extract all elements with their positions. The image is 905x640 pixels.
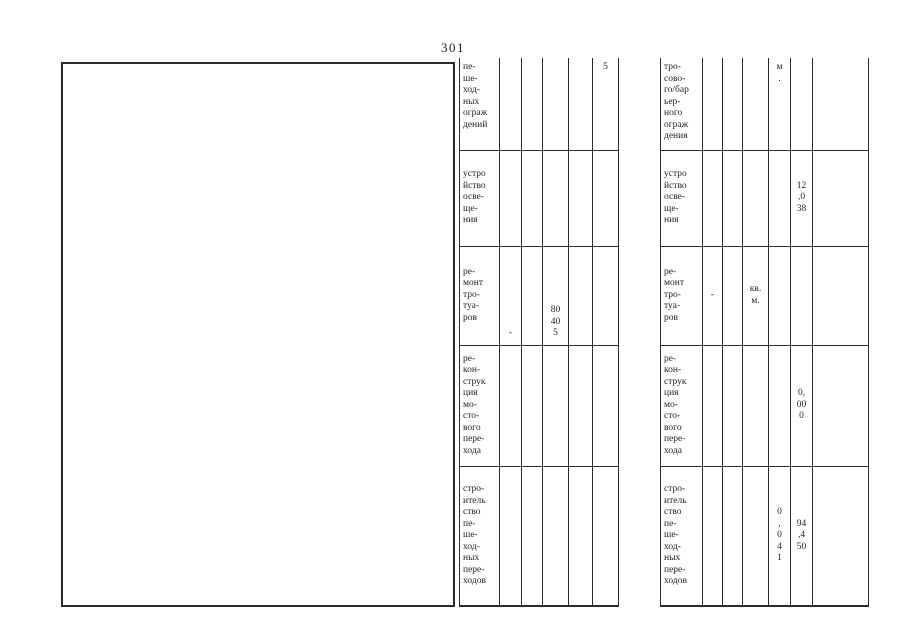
data-cell (522, 58, 543, 150)
table-row: ре- монт тро- туа- ров - кв. м. (661, 246, 869, 345)
data-cell (500, 345, 522, 466)
data-cell (522, 345, 543, 466)
table-row: устро йство осве- ще- ния 12 ,0 38 (661, 150, 869, 246)
data-cell (723, 246, 743, 345)
data-cell (723, 345, 743, 466)
table-fragment-left: пе- ше- ход- ных ограж дений 5 устро йст… (459, 58, 619, 607)
data-cell (543, 150, 569, 246)
row-label-cell: устро йство осве- ще- ния (661, 150, 703, 246)
data-cell (791, 246, 813, 345)
data-cell (500, 466, 522, 606)
data-cell: - (500, 246, 522, 345)
data-cell (813, 345, 869, 466)
row-label-cell: ре- кон- струк ция мо- сто- вого пере- х… (661, 345, 703, 466)
empty-content-box (61, 62, 455, 607)
row-label-cell: ре- монт тро- туа- ров (661, 246, 703, 345)
data-cell: 80 40 5 (543, 246, 569, 345)
data-cell (593, 150, 619, 246)
data-cell (703, 466, 723, 606)
table-row: ре- кон- струк ция мо- сто- вого пере- х… (661, 345, 869, 466)
data-cell (593, 466, 619, 606)
data-cell (569, 466, 593, 606)
document-page: 301 пе- ше- ход- ных ограж дений 5 устро… (0, 0, 905, 640)
data-cell (743, 150, 769, 246)
data-cell: 0, 00 0 (791, 345, 813, 466)
data-cell: 5 (593, 58, 619, 150)
data-cell (569, 58, 593, 150)
table-row: тро- сово- го/бар ьер- ного ограж дения … (661, 58, 869, 150)
data-cell (813, 58, 869, 150)
data-cell (791, 58, 813, 150)
row-label-cell: устро йство осве- ще- ния (460, 150, 500, 246)
data-cell (522, 246, 543, 345)
data-cell (723, 466, 743, 606)
data-cell (769, 345, 791, 466)
table-row: ре- кон- струк ция мо- сто- вого пере- х… (460, 345, 619, 466)
data-cell (703, 345, 723, 466)
row-label-cell: ре- монт тро- туа- ров (460, 246, 500, 345)
row-label-cell: стро- итель ство пе- ше- ход- ных пере- … (460, 466, 500, 606)
table-row: пе- ше- ход- ных ограж дений 5 (460, 58, 619, 150)
data-cell (703, 150, 723, 246)
data-cell (813, 150, 869, 246)
data-cell: - (703, 246, 723, 345)
table-row: ре- монт тро- туа- ров - 80 40 5 (460, 246, 619, 345)
data-cell (769, 150, 791, 246)
data-cell: 94 ,4 50 (791, 466, 813, 606)
data-cell: 0 , 0 4 1 (769, 466, 791, 606)
table-row: стро- итель ство пе- ше- ход- ных пере- … (460, 466, 619, 606)
data-cell (703, 58, 723, 150)
data-cell (543, 345, 569, 466)
data-cell (543, 58, 569, 150)
row-label-cell: стро- итель ство пе- ше- ход- ных пере- … (661, 466, 703, 606)
data-cell (569, 246, 593, 345)
data-cell (813, 466, 869, 606)
row-label-cell: тро- сово- го/бар ьер- ного ограж дения (661, 58, 703, 150)
data-cell (500, 150, 522, 246)
data-cell (522, 150, 543, 246)
data-cell: кв. м. (743, 246, 769, 345)
page-number: 301 (441, 40, 465, 56)
data-cell (813, 246, 869, 345)
data-cell (593, 246, 619, 345)
row-label-cell: пе- ше- ход- ных ограж дений (460, 58, 500, 150)
data-cell: м . (769, 58, 791, 150)
data-cell (769, 246, 791, 345)
data-cell (593, 345, 619, 466)
data-cell (522, 466, 543, 606)
table-row: устро йство осве- ще- ния (460, 150, 619, 246)
data-cell (743, 466, 769, 606)
data-cell (569, 345, 593, 466)
data-cell (743, 58, 769, 150)
data-cell (723, 58, 743, 150)
data-cell (543, 466, 569, 606)
data-cell (723, 150, 743, 246)
data-cell: 12 ,0 38 (791, 150, 813, 246)
data-cell (569, 150, 593, 246)
table-fragment-right: тро- сово- го/бар ьер- ного ограж дения … (660, 58, 869, 607)
table-row: стро- итель ство пе- ше- ход- ных пере- … (661, 466, 869, 606)
data-cell (743, 345, 769, 466)
data-cell (500, 58, 522, 150)
row-label-cell: ре- кон- струк ция мо- сто- вого пере- х… (460, 345, 500, 466)
